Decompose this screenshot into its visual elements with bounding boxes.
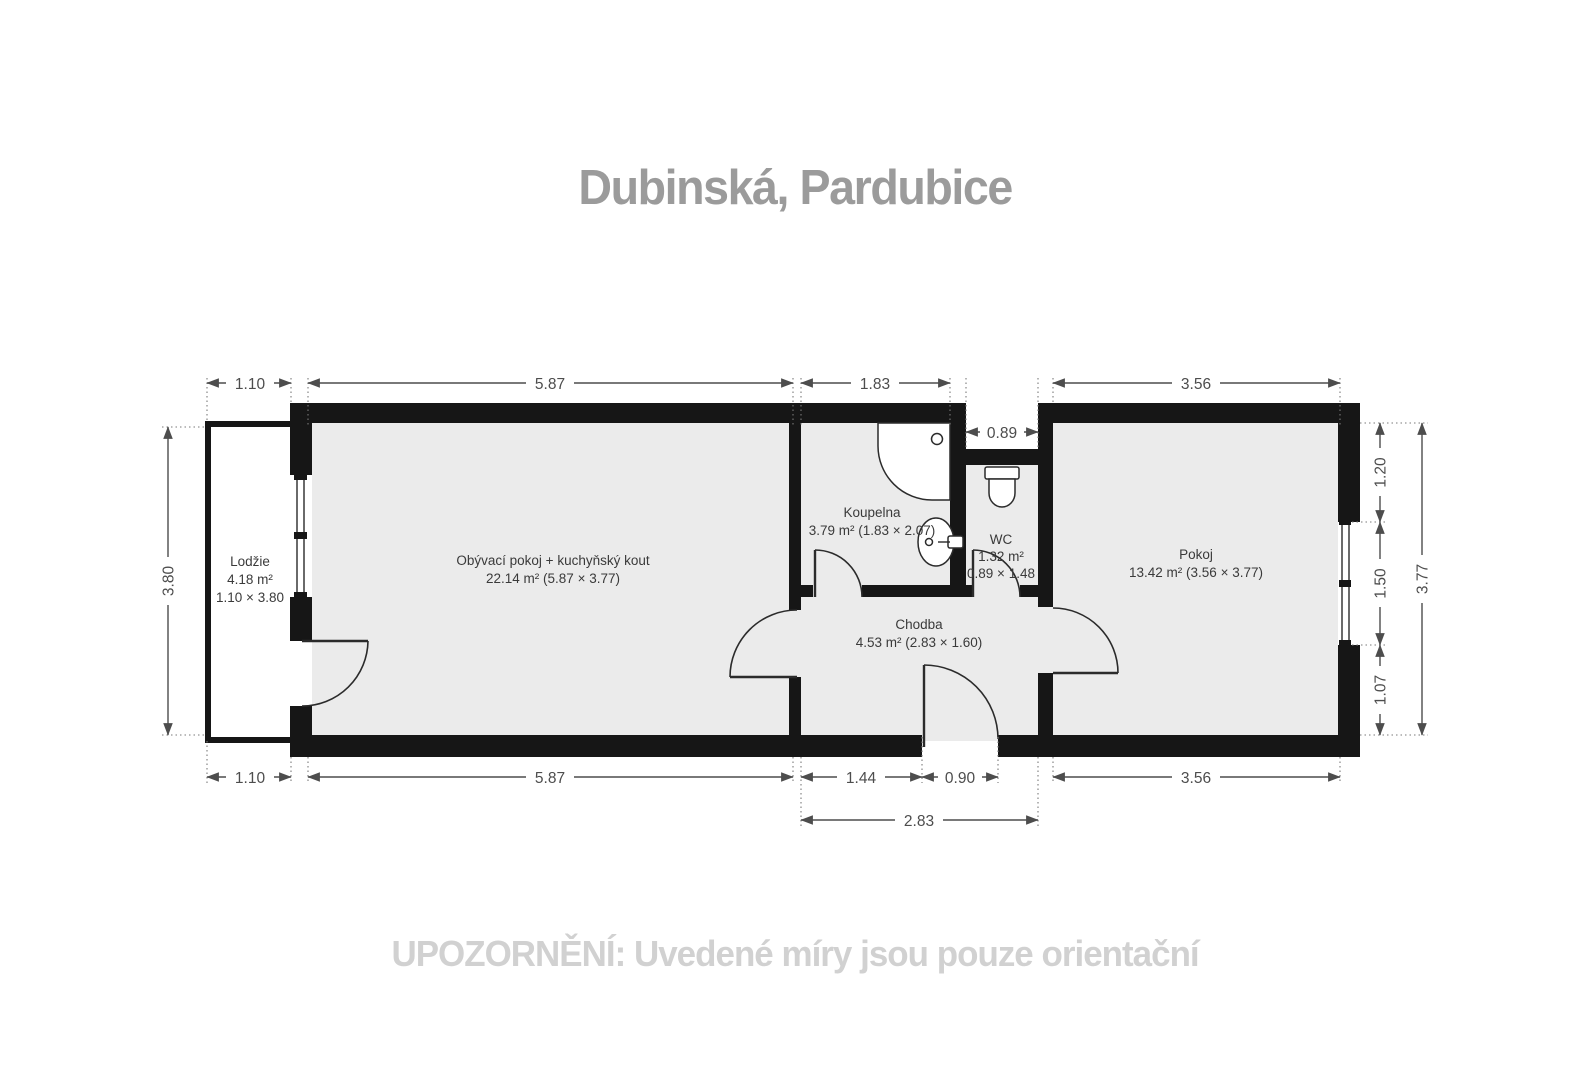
room-size: 1.10 × 3.80 bbox=[216, 590, 284, 605]
disclaimer-text: UPOZORNĚNÍ: Uvedené míry jsou pouze orie… bbox=[0, 933, 1591, 975]
room-name: Lodžie bbox=[230, 554, 270, 569]
dim-lodzie-width-top: 1.10 bbox=[235, 376, 266, 393]
wall bbox=[1038, 673, 1053, 735]
wall bbox=[290, 735, 922, 757]
wall bbox=[290, 403, 966, 423]
dim-bathroom-width-top: 1.83 bbox=[860, 376, 890, 393]
wall bbox=[950, 585, 973, 597]
dim-living-width-bottom: 5.87 bbox=[535, 770, 565, 787]
page-title: Dubinská, Pardubice bbox=[0, 160, 1591, 216]
room-name: Koupelna bbox=[843, 505, 901, 520]
wall bbox=[1038, 423, 1053, 607]
dim-living-width-top: 5.87 bbox=[535, 376, 565, 393]
dim-hall-to-door: 1.44 bbox=[846, 770, 877, 787]
wall bbox=[1038, 403, 1360, 423]
dim-wc-width: 0.89 bbox=[987, 425, 1017, 442]
wall bbox=[950, 423, 966, 597]
wall bbox=[789, 677, 801, 735]
dim-lodzie-width-bottom: 1.10 bbox=[235, 770, 266, 787]
room-area: 4.18 m² bbox=[227, 572, 273, 587]
room-window-icon bbox=[1338, 520, 1360, 645]
loggia-wall bbox=[205, 421, 290, 427]
room-size: 0.89 × 1.48 bbox=[967, 566, 1035, 581]
wall bbox=[998, 735, 1360, 757]
dim-below-window: 1.07 bbox=[1373, 675, 1390, 705]
dim-height-total: 3.77 bbox=[1415, 564, 1432, 594]
room-area: 3.79 m² (1.83 × 2.07) bbox=[809, 523, 935, 538]
dim-entry-door: 0.90 bbox=[945, 770, 976, 787]
room-name: Pokoj bbox=[1179, 547, 1213, 562]
room-area: 1.32 m² bbox=[978, 549, 1024, 564]
room-name: WC bbox=[990, 532, 1013, 547]
entry-threshold bbox=[922, 735, 998, 741]
dim-hall-total: 2.83 bbox=[904, 813, 934, 830]
loggia-wall bbox=[205, 737, 290, 743]
dim-window-height: 1.50 bbox=[1373, 568, 1390, 599]
room-area: 4.53 m² (2.83 × 1.60) bbox=[856, 635, 982, 650]
dim-lodzie-height: 3.80 bbox=[161, 566, 178, 597]
wall bbox=[290, 403, 312, 475]
loggia-wall bbox=[205, 421, 211, 743]
wall bbox=[789, 585, 813, 597]
loggia-window-icon bbox=[290, 475, 312, 597]
room-area: 13.42 m² (3.56 × 3.77) bbox=[1129, 565, 1263, 580]
wall bbox=[1020, 585, 1053, 597]
room-name: Chodba bbox=[895, 617, 943, 632]
room-name: Obývací pokoj + kuchyňský kout bbox=[456, 553, 649, 568]
room-area: 22.14 m² (5.87 × 3.77) bbox=[486, 571, 620, 586]
wall bbox=[290, 597, 312, 641]
wall bbox=[1338, 403, 1360, 522]
dim-room-width-top: 3.56 bbox=[1181, 376, 1211, 393]
dim-room-width-bottom: 3.56 bbox=[1181, 770, 1211, 787]
wall bbox=[789, 423, 801, 610]
dim-above-window: 1.20 bbox=[1373, 457, 1390, 488]
